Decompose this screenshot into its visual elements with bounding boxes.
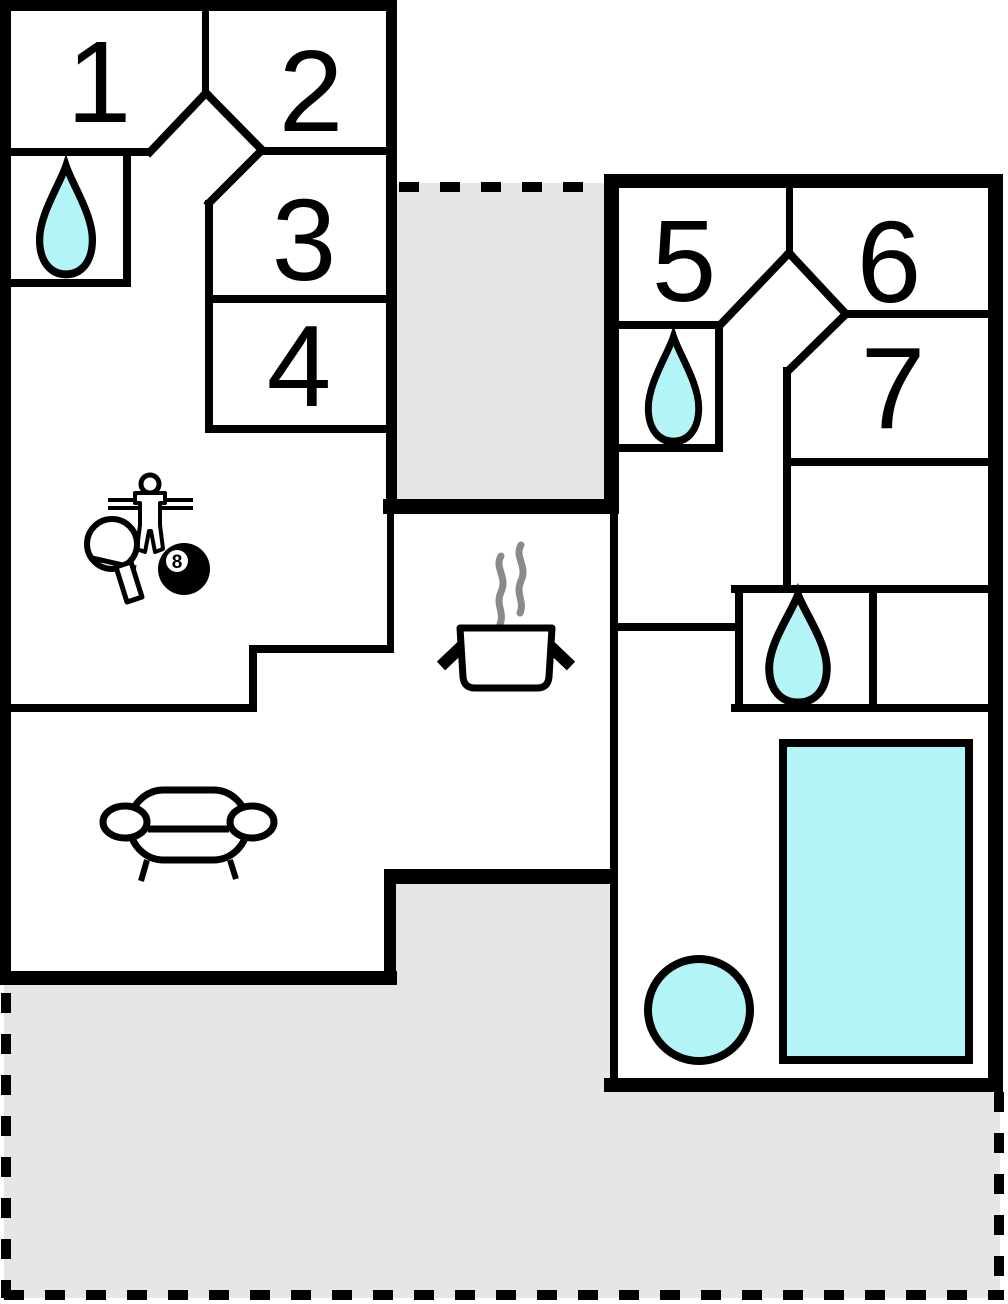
room-label-4: 4 [267,301,332,431]
wall [5,704,257,712]
room-label-1: 1 [67,17,132,147]
wall [205,299,213,431]
foosball-player-head [141,475,159,493]
room-label-7: 7 [861,323,926,453]
wall [604,174,619,514]
wall [202,9,209,95]
wall [731,585,990,593]
top-terrace [397,183,605,503]
steam-icon [499,556,503,624]
wall [783,367,791,593]
wall [0,0,11,985]
room-label-5: 5 [652,196,717,326]
wall [384,869,396,983]
wall [249,645,257,712]
wall [6,279,131,287]
round-tub [648,959,750,1061]
wall [786,188,793,256]
wall [618,623,739,631]
wall [604,174,1003,188]
wall [785,458,990,466]
room-label-6: 6 [857,197,922,327]
wall [386,0,397,514]
wall [0,0,397,11]
billiard-ball-number: 8 [172,552,183,573]
wall [988,174,1003,1092]
room-label-3: 3 [272,175,337,305]
wall [205,200,213,302]
wall [715,321,723,452]
wall [604,1078,1003,1092]
wall [610,510,618,1080]
cooking-pot-icon [460,628,552,688]
wall [387,514,394,653]
wall [735,585,743,712]
room-label-2: 2 [279,26,344,156]
rectangular-pool [783,743,969,1060]
sofa-armrest [103,806,147,838]
floor-plan: 8 1 2 3 4 5 6 7 [0,0,1008,1304]
sofa-armrest [230,806,274,838]
wall [731,704,990,712]
floor-plan-page: 8 1 2 3 4 5 6 7 [0,0,1008,1304]
wall [123,152,131,286]
wall [249,645,393,653]
steam-icon [519,545,523,613]
wall [869,585,877,712]
wall [384,869,617,884]
wall [0,971,397,985]
wall [383,499,618,514]
